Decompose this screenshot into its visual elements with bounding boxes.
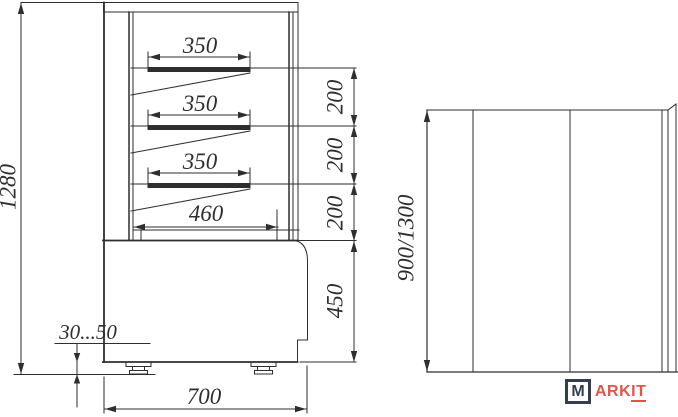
side-view [14, 3, 356, 375]
label-shelf-3-width: 350 [182, 149, 218, 174]
dimensions [18, 3, 357, 414]
top-canopy [104, 3, 299, 13]
dim-overall-height [18, 3, 103, 375]
label-shelf-gap-3: 200 [322, 195, 347, 230]
dim-feet-adjust [55, 344, 150, 408]
dim-shelf-gaps-and-base [351, 68, 357, 362]
logo-text-ark: ARK [595, 383, 631, 400]
label-shelf-1-width: 350 [182, 33, 218, 58]
shelf-1-board [148, 68, 250, 72]
label-front-height-options: 900/1300 [393, 194, 418, 281]
label-shelf-gap-1: 200 [322, 79, 347, 114]
base-right-edge [295, 241, 308, 363]
label-bottom-deck-width: 460 [189, 201, 224, 226]
foot-right [251, 362, 276, 374]
markit-logo: M ARKIT [565, 379, 646, 404]
foot-left [126, 362, 151, 374]
shelf-2-board [148, 126, 250, 130]
front-corner-bevel [668, 104, 676, 110]
logo-wordmark: ARKIT [595, 384, 646, 400]
label-shelf-gap-2: 200 [322, 137, 347, 172]
shelf-3-board [148, 184, 250, 188]
logo-m-box: M [565, 379, 591, 404]
label-overall-height: 1280 [0, 164, 20, 211]
technical-drawing-canvas: 1280 350 350 350 460 200 200 200 450 30.… [0, 0, 678, 417]
drawing-linework: 1280 350 350 350 460 200 200 200 450 30.… [0, 0, 678, 417]
label-depth: 700 [187, 384, 222, 409]
label-shelf-2-width: 350 [182, 91, 218, 116]
label-base-height: 450 [322, 283, 347, 318]
logo-text-it-underlined: IT [631, 383, 646, 402]
label-feet-adjust: 30...50 [58, 320, 117, 344]
front-view [424, 104, 678, 372]
